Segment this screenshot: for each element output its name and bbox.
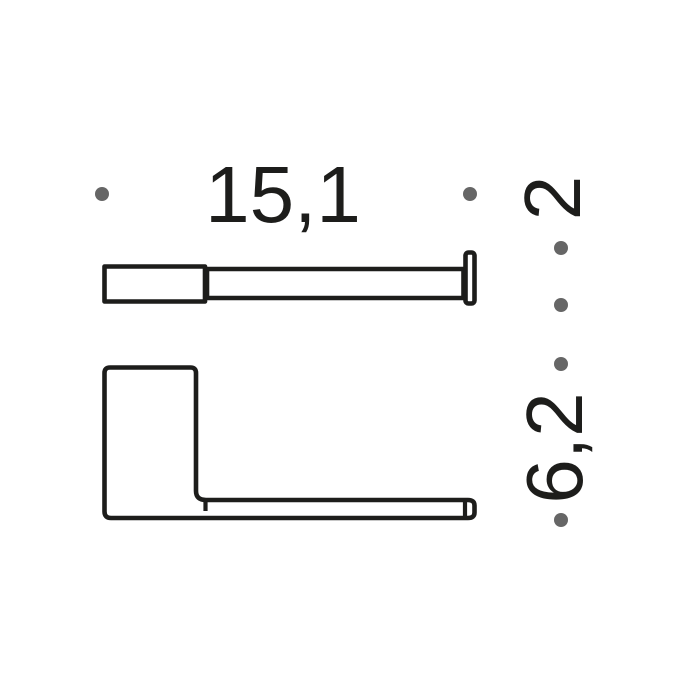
top-view-drawing: [105, 253, 475, 304]
product-line-drawing: [0, 0, 700, 700]
dimension-dot: [554, 298, 568, 312]
technical-drawing-canvas: 15,1 2 6,2: [0, 0, 700, 700]
dimension-dot: [554, 241, 568, 255]
width-dimension-label: 15,1: [205, 155, 361, 235]
depth-dimension-label: 2: [513, 176, 593, 221]
dimension-dot: [554, 513, 568, 527]
front-view-drawing: [105, 368, 475, 519]
arm-top-view: [207, 269, 464, 298]
body-front-view: [105, 368, 475, 519]
dimension-dot: [554, 357, 568, 371]
height-dimension-label: 6,2: [515, 392, 595, 503]
dimension-dot: [463, 187, 477, 201]
wall-plate-top-view: [105, 267, 206, 302]
dimension-dot: [95, 187, 109, 201]
end-cap-top-view: [466, 253, 475, 304]
